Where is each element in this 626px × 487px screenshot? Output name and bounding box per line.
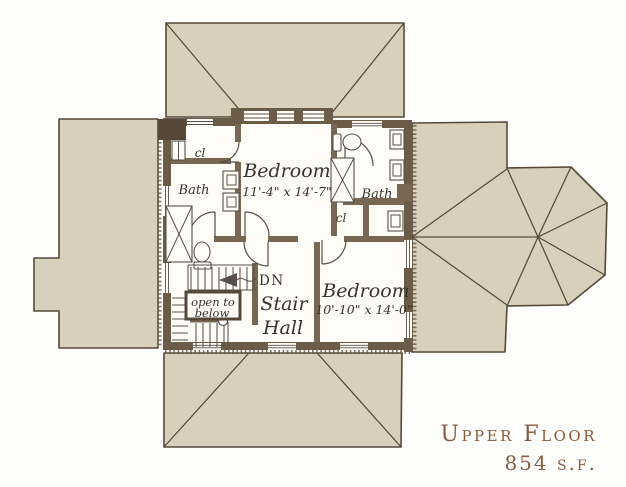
bath-right-label: Bath xyxy=(361,187,393,202)
bath-left-label: Bath xyxy=(178,183,210,198)
bedroom1-label: Bedroom xyxy=(242,160,330,182)
title-block: Upper Floor 854 s.f. xyxy=(440,422,597,475)
bedroom2-label: Bedroom xyxy=(321,280,409,302)
toilet-left-bowl xyxy=(194,242,210,262)
floor-title: Upper Floor xyxy=(440,422,597,447)
toilet-right-tank xyxy=(333,134,341,151)
stair-hall-label-line2: Hall xyxy=(262,317,303,339)
roof-plane-left xyxy=(34,119,158,348)
closet-left-label: cl xyxy=(195,146,206,160)
built-in-cabinet-right xyxy=(388,211,403,231)
vanity-right-sink-1 xyxy=(390,130,404,149)
wall-ledge-right xyxy=(397,184,412,201)
stair-hall-label-line1: Stair xyxy=(260,293,309,315)
floor-area-text: 854 s.f. xyxy=(504,451,597,475)
closet-right-label: cl xyxy=(336,211,347,225)
roof-plane-top xyxy=(166,23,404,117)
toilet-right-bowl xyxy=(343,134,361,150)
vanity-right-sink-2 xyxy=(390,160,404,180)
vanity-left-sink-2 xyxy=(223,193,239,211)
roof-plane-bottom xyxy=(164,353,402,447)
open-below-label-line2: below xyxy=(195,306,230,320)
bedroom2-dims: 10'-10" x 14'-0" xyxy=(315,302,413,317)
bedroom1-dims: 11'-4" x 14'-7" xyxy=(242,184,332,199)
chimney-block xyxy=(158,119,186,140)
floor-plan-canvas: cl Bath Bedroom 11'-4" x 14'-7" Bath cl … xyxy=(0,0,626,487)
vanity-left-sink-1 xyxy=(223,171,239,189)
down-label: DN xyxy=(259,273,285,289)
